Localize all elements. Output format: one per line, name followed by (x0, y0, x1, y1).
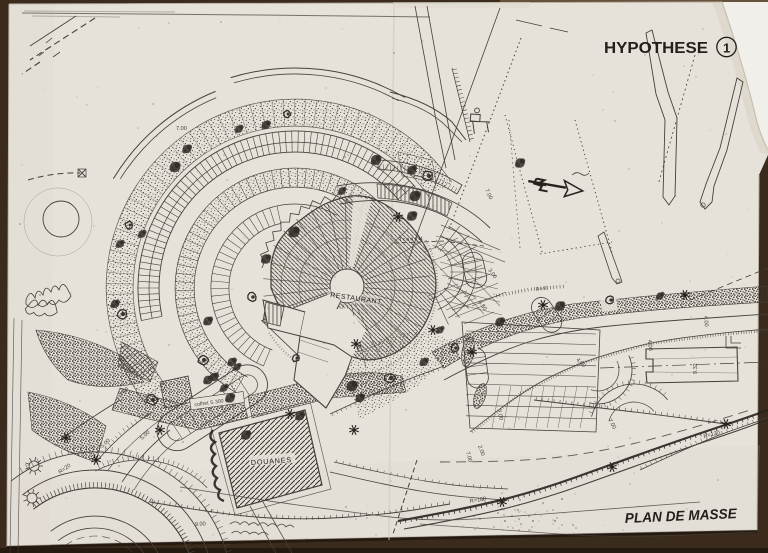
svg-text:1: 1 (723, 41, 730, 56)
svg-text:4.00: 4.00 (646, 340, 653, 351)
svg-text:7.00: 7.00 (176, 126, 187, 132)
svg-text:HYPOTHESE: HYPOTHESE (604, 40, 708, 57)
svg-text:9.00: 9.00 (195, 521, 206, 528)
svg-text:4.00: 4.00 (702, 316, 709, 327)
svg-text:9.32: 9.32 (693, 363, 699, 374)
